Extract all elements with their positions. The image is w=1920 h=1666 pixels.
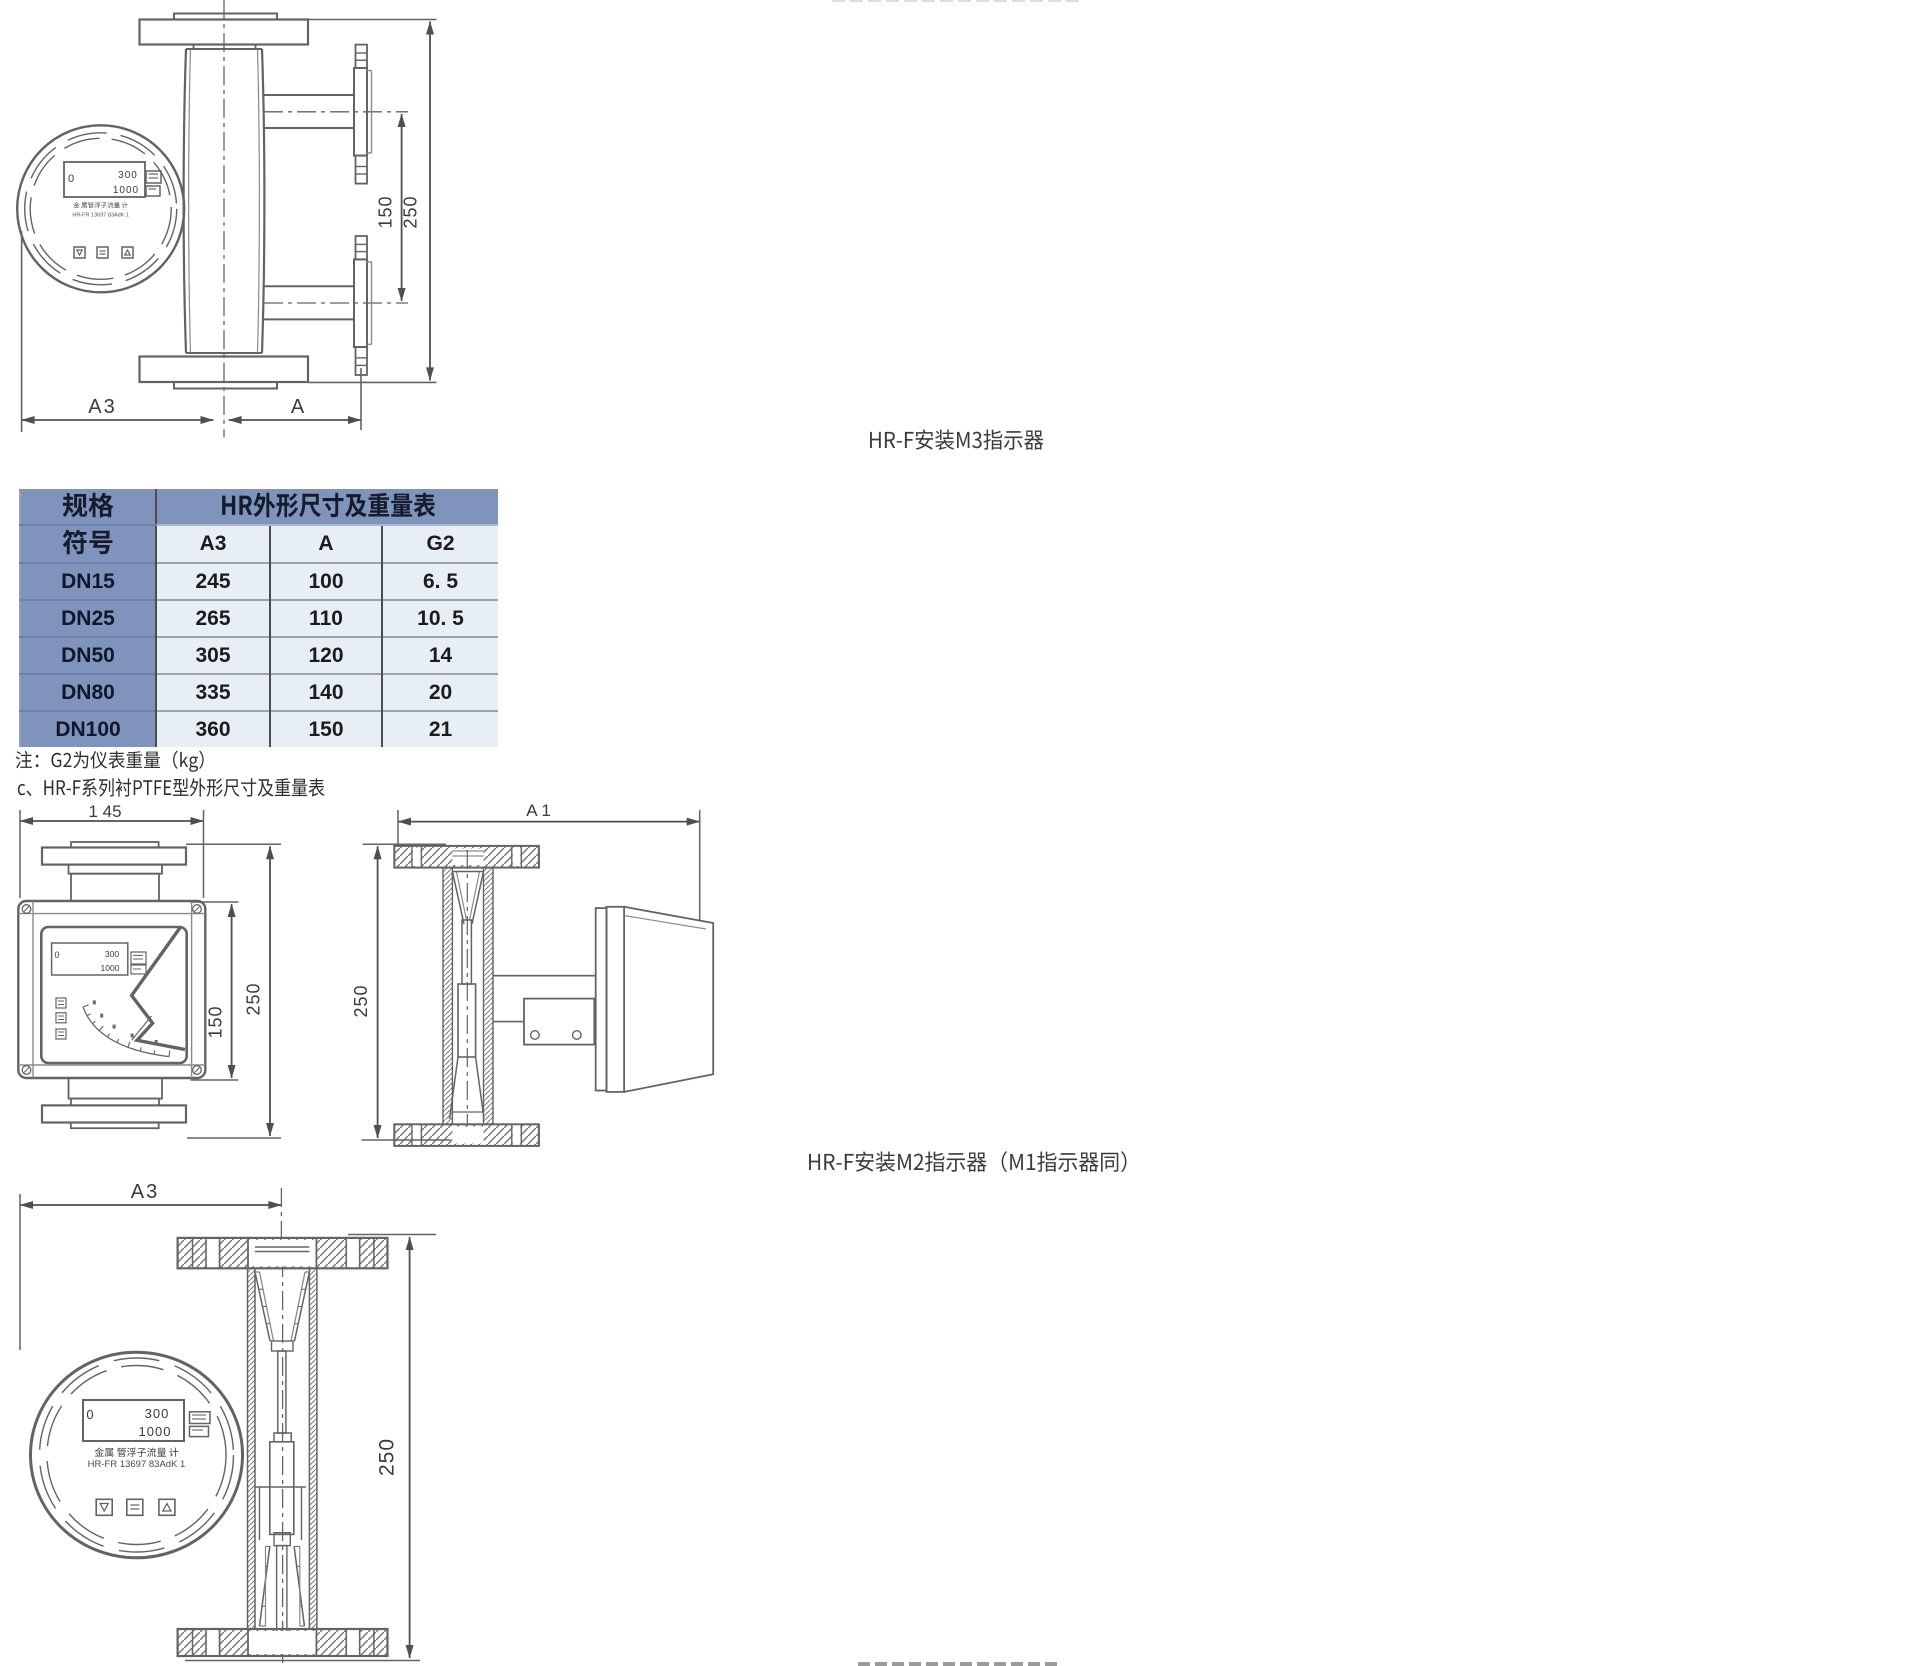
svg-text:250: 250	[351, 984, 371, 1017]
svg-text:150: 150	[376, 195, 396, 228]
svg-text:1000: 1000	[113, 185, 139, 196]
svg-text:0: 0	[68, 173, 74, 185]
svg-text:250: 250	[401, 195, 421, 228]
svg-text:0: 0	[86, 1407, 93, 1422]
svg-text:300: 300	[105, 949, 119, 959]
svg-text:300: 300	[118, 170, 138, 181]
svg-text:1000: 1000	[139, 1424, 172, 1439]
svg-text:A 1: A 1	[526, 801, 551, 820]
svg-text:A3: A3	[88, 396, 116, 418]
svg-text:1000: 1000	[101, 963, 120, 973]
svg-text:300: 300	[145, 1406, 170, 1421]
svg-text:HR-FR 13697 83AdK 1: HR-FR 13697 83AdK 1	[72, 213, 129, 219]
svg-text:250: 250	[376, 1438, 399, 1476]
svg-text:A: A	[291, 396, 305, 418]
svg-text:0: 0	[54, 950, 59, 960]
svg-text:A3: A3	[131, 1181, 159, 1203]
svg-text:HR-FR 13697 83AdK 1: HR-FR 13697 83AdK 1	[88, 1459, 186, 1470]
svg-text:1 45: 1 45	[88, 802, 121, 821]
svg-text:150: 150	[206, 1005, 226, 1038]
svg-text:250: 250	[244, 982, 264, 1015]
